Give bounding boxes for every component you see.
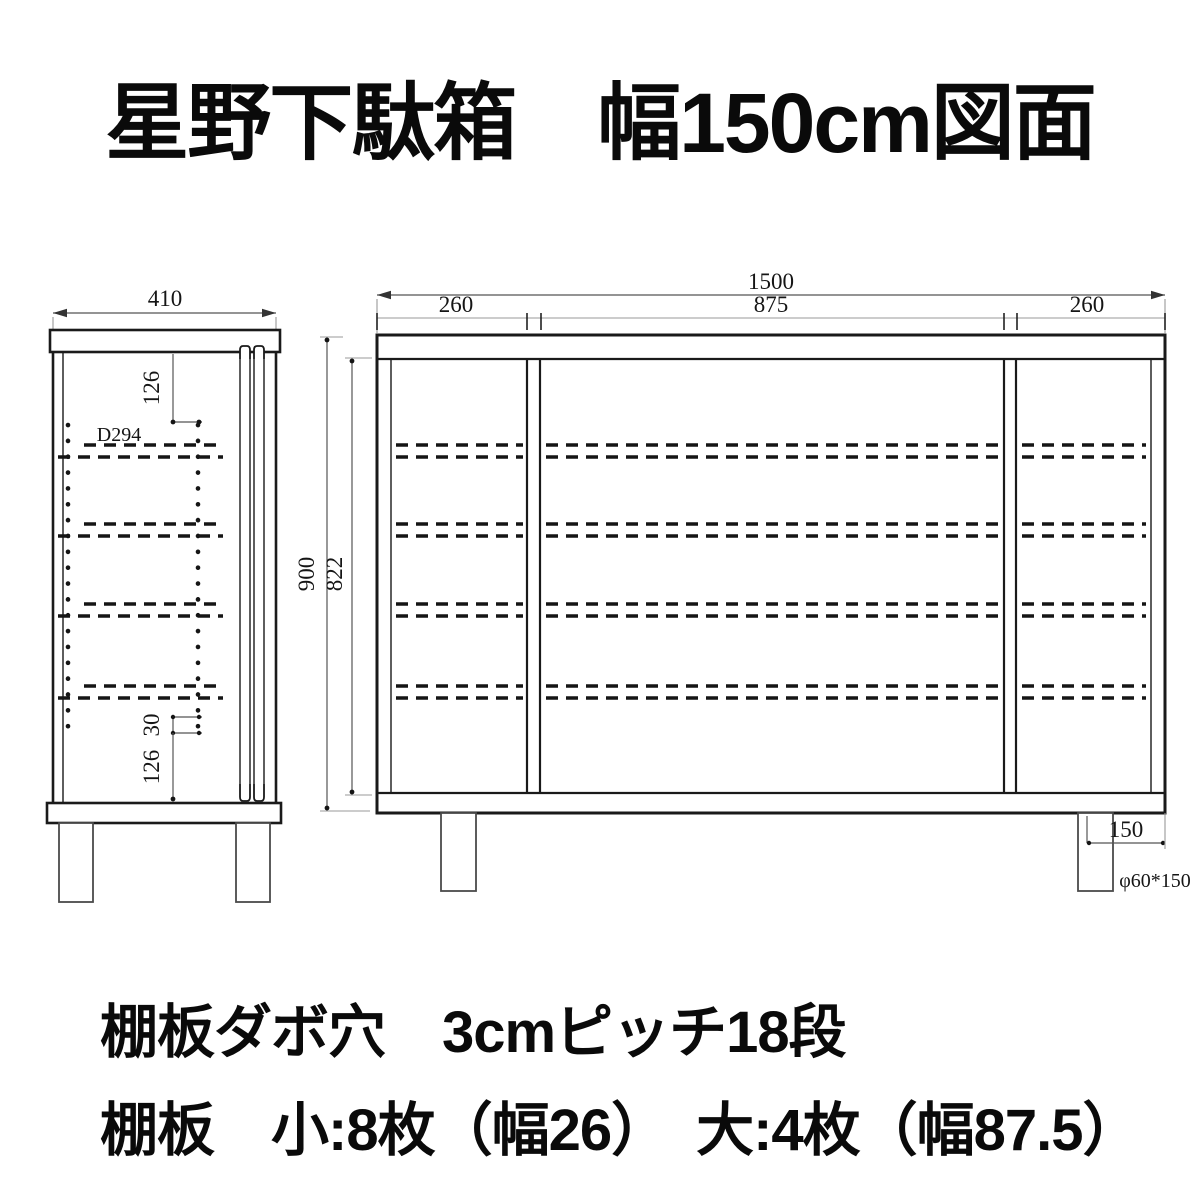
technical-drawing: 星野下駄箱 幅150cm図面 410 [0,0,1200,1200]
arrowhead-right [262,309,276,317]
hole-pitch-value: 30 [139,714,164,737]
front-inner-height-value: 822 [322,557,347,592]
center-section-value: 875 [754,292,789,317]
note-shelf-boards: 棚板 小:8枚（幅26） 大:4枚（幅87.5） [100,1098,1140,1163]
front-inner-height-dimension: 822 [322,358,372,795]
front-cabinet-outline [377,335,1165,813]
page-title: 星野下駄箱 幅150cm図面 [105,76,1095,170]
note-shelf-holes: 棚板ダボ穴 3cmピッチ18段 [100,1000,847,1065]
door-top-rail [254,346,264,359]
front-view: 1500 260 875 260 [294,269,1191,892]
leg-height-value: 150 [1109,817,1144,842]
side-leg-right [236,823,270,902]
side-base-plinth [47,803,281,823]
left-section-value: 260 [439,292,474,317]
right-section-value: 260 [1070,292,1105,317]
side-leg-left [59,823,93,902]
side-bottom-offset-value: 126 [139,750,164,785]
shelf-depth-label: D294 [97,424,141,446]
hole-pitch-dimension: 30 [139,714,202,737]
front-section-dimensions: 260 875 260 [377,292,1165,330]
door-bottom-roller [240,784,250,801]
front-leg-left [441,813,476,891]
side-top-offset-value: 126 [139,371,164,406]
side-top-offset-dimension: 126 [139,354,202,424]
drawing-page: 星野下駄箱 幅150cm図面 410 [0,0,1200,1200]
side-door-lines [240,346,264,801]
door-top-rail [240,346,250,359]
side-width-dimension: 410 [53,286,276,329]
front-overall-width-value: 1500 [748,269,794,294]
front-leg-right [1078,813,1113,891]
leg-spec-label: φ60*150 [1119,870,1191,892]
side-view: 410 126 D294 [47,286,281,902]
side-bottom-offset-dimension: 126 [139,733,175,801]
side-shelf-dashed-lines [58,445,223,698]
side-width-value: 410 [148,286,183,311]
door-bottom-roller [254,784,264,801]
arrowhead-left [53,309,67,317]
front-overall-height-value: 900 [294,557,319,592]
